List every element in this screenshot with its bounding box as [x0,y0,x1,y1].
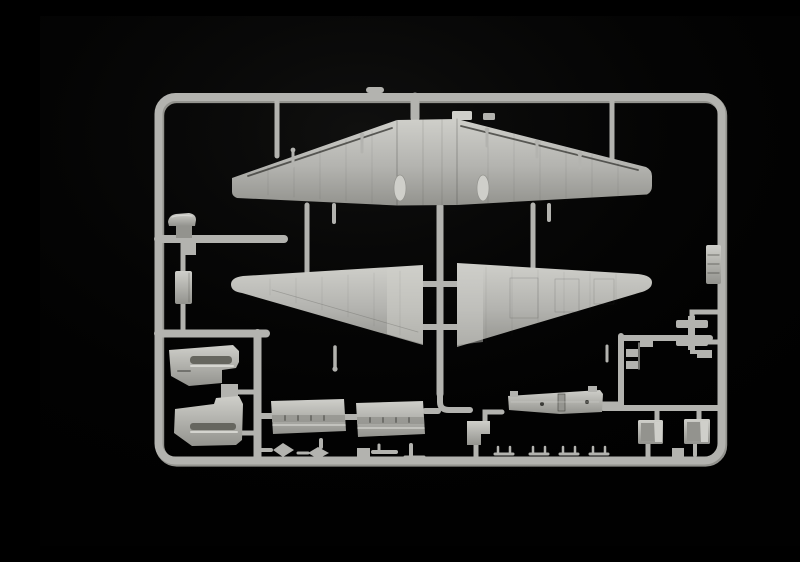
gate-pin-head [578,152,583,157]
radiator1-flange [655,422,662,442]
gate-pin-head [360,133,365,138]
cluster-rung-1 [626,349,638,357]
model-kit-sprue-photo [40,16,800,546]
door1-groove [272,415,345,422]
door2-groove [357,417,424,424]
gate-pin-head [535,140,540,145]
wing-nacelle-opening-right [477,175,489,201]
rect-fairing-part [175,271,192,304]
gate-pin-head [332,366,337,371]
radiator1-core [641,423,654,441]
cluster-connector [688,316,695,350]
wing-center-tab-1 [452,111,472,120]
sprue-photo-svg [40,16,800,546]
gate-pin-head [291,148,296,153]
wing-nacelle-opening-left [394,175,406,201]
nacelle-lower-exhaust-slot [190,423,236,430]
radiator2-flange [701,421,708,442]
nacelle-upper-exhaust-slot [190,356,232,364]
floor-slot [558,394,565,411]
floor-tab-right [588,386,597,392]
radiator2-core [687,422,700,441]
nacelle-door-part-2 [356,401,425,437]
edge-clip-part [706,245,721,284]
square-part-2 [672,448,684,458]
cluster-rung-2 [626,361,638,369]
floor-hole-1 [540,402,544,406]
gate-pin-head [485,128,490,133]
small-square-part [183,243,196,255]
scoop-base [176,226,192,238]
lower-wing-right-root-panel [457,265,483,345]
radiator-part-1 [638,420,663,444]
radiator-part-2 [684,419,710,444]
floor-tab-left [510,391,518,397]
nacelle-door-part-1 [271,399,346,434]
wing-center-tab-2 [483,113,495,120]
square-part-1 [357,448,370,458]
cluster-square [640,336,653,347]
